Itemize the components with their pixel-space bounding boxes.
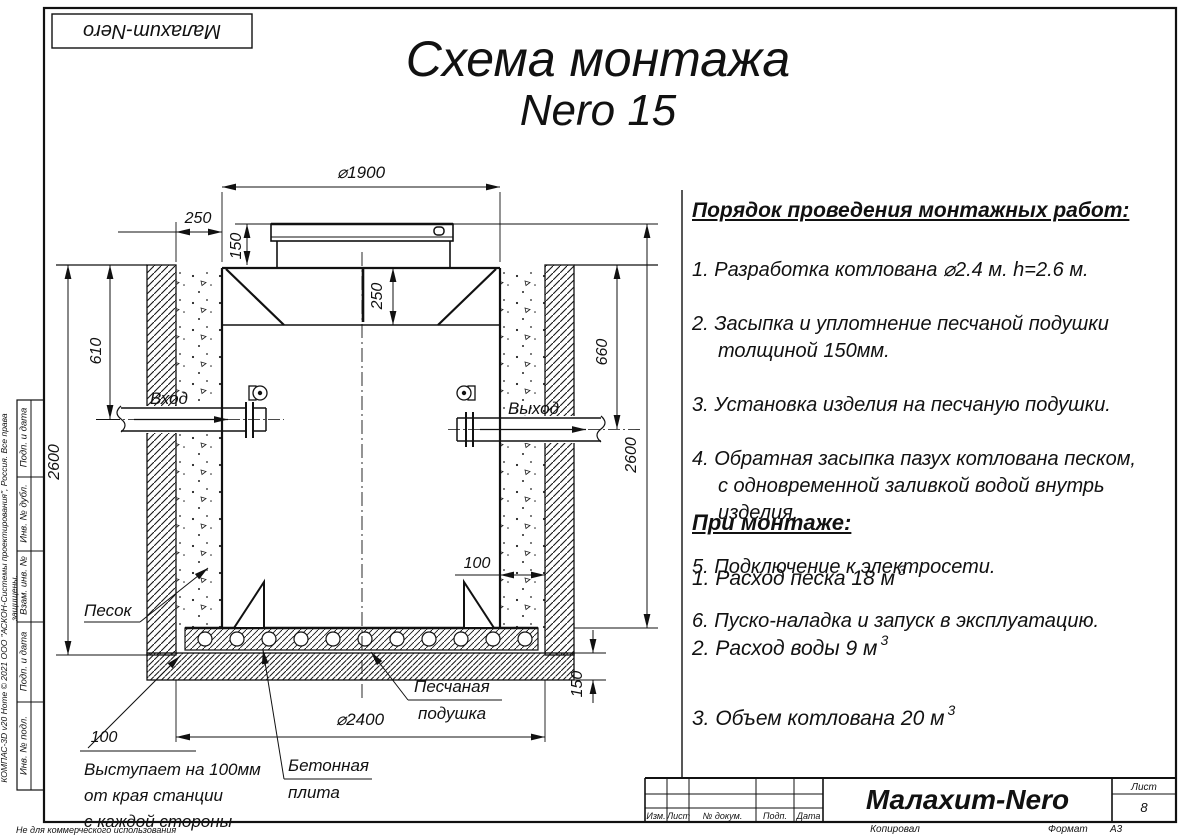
label-concrete-slab: плита — [288, 784, 358, 801]
label-sand: Песок — [84, 602, 142, 619]
dim-backfill-left: 250 — [172, 211, 224, 227]
sidebar-cell: Подп. и дата — [19, 403, 30, 473]
instruction-step: 3. Установка изделия на песчаную подушки… — [692, 392, 1178, 419]
superscript: 3 — [898, 562, 906, 578]
titleblock-sheet-number: 8 — [1112, 800, 1176, 815]
page-title: Схема монтажа — [348, 32, 848, 86]
montage-list: 1. Расход песка 18 м3 2. Расход воды 9 м… — [692, 543, 1092, 777]
dim-inlet-depth: 610 — [89, 328, 105, 374]
label-overhang-note: Выступает на 100мм от края станции с каж… — [84, 757, 264, 835]
instruction-step: 2. Засыпка и уплотнение песчаной подушки… — [692, 311, 1178, 365]
titleblock-copied-by: Копировал — [845, 824, 945, 835]
montage-heading: При монтаже: — [692, 510, 992, 536]
sidebar-cell: Подп. и дата — [19, 627, 30, 697]
label-sand-cushion: подушка — [418, 705, 498, 722]
dim-pit-depth-right: 2600 — [624, 427, 640, 483]
dim-neck-inner: 250 — [370, 273, 386, 319]
montage-item: 3. Объем котлована 20 м3 — [692, 707, 1092, 732]
sidebar-cell: Взам. инв. № — [19, 551, 30, 621]
titleblock-col-ndokum: № докум. — [689, 809, 756, 823]
label-outlet: Выход — [508, 400, 572, 417]
titleblock-col-podp: Подп. — [756, 809, 794, 823]
dim-slab-overhang: 100 — [84, 730, 124, 746]
instruction-step: 1. Разработка котлована ⌀2.4 м. h=2.6 м. — [692, 257, 1178, 284]
titleblock-col-izm: Изм. — [645, 809, 667, 823]
label-concrete-slab: Бетонная — [288, 757, 378, 774]
titleblock-format-label: Формат — [1048, 824, 1108, 835]
dim-pit-depth-left: 2600 — [47, 434, 63, 490]
montage-item: 1. Расход песка 18 м3 — [692, 567, 1092, 592]
titleblock-format-value: А3 — [1110, 824, 1140, 835]
titleblock-brand: Малахит-Nero — [823, 778, 1112, 822]
dim-top-diameter: ⌀1900 — [321, 165, 401, 181]
superscript: 3 — [880, 632, 888, 648]
instructions-heading: Порядок проведения монтажных работ: — [692, 198, 1178, 224]
drawing-sheet: Малахит-Nero Схема монтажа Nero 15 Поряд… — [0, 0, 1184, 836]
dim-bottom-diameter: ⌀2400 — [318, 712, 402, 728]
sheet-footer-note: Не для коммерческого использования — [16, 825, 256, 835]
superscript: 3 — [948, 702, 956, 718]
titleblock-sheet-label: Лист — [1112, 781, 1176, 795]
dim-outlet-depth: 660 — [595, 324, 611, 380]
titleblock-col-list: Лист — [667, 809, 689, 823]
dim-backfill-right: 100 — [455, 556, 499, 572]
page-subtitle: Nero 15 — [348, 88, 848, 134]
label-sand-cushion: Песчаная — [414, 678, 504, 695]
label-inlet: Вход — [150, 390, 210, 407]
montage-item: 2. Расход воды 9 м3 — [692, 637, 1092, 662]
sidebar-cell: Инв. № дубл. — [19, 479, 30, 549]
top-brand-stamp: Малахит-Nero — [52, 14, 252, 48]
dim-cushion-height: 150 — [570, 661, 586, 707]
sidebar-cell: Инв. № подл. — [19, 711, 30, 781]
dim-lid-height: 150 — [229, 223, 245, 269]
titleblock-col-data: Дата — [794, 809, 823, 823]
sidebar-copyright: КОМПАС-3D v20 Home © 2021 ООО "АСКОН-Сис… — [0, 398, 19, 798]
